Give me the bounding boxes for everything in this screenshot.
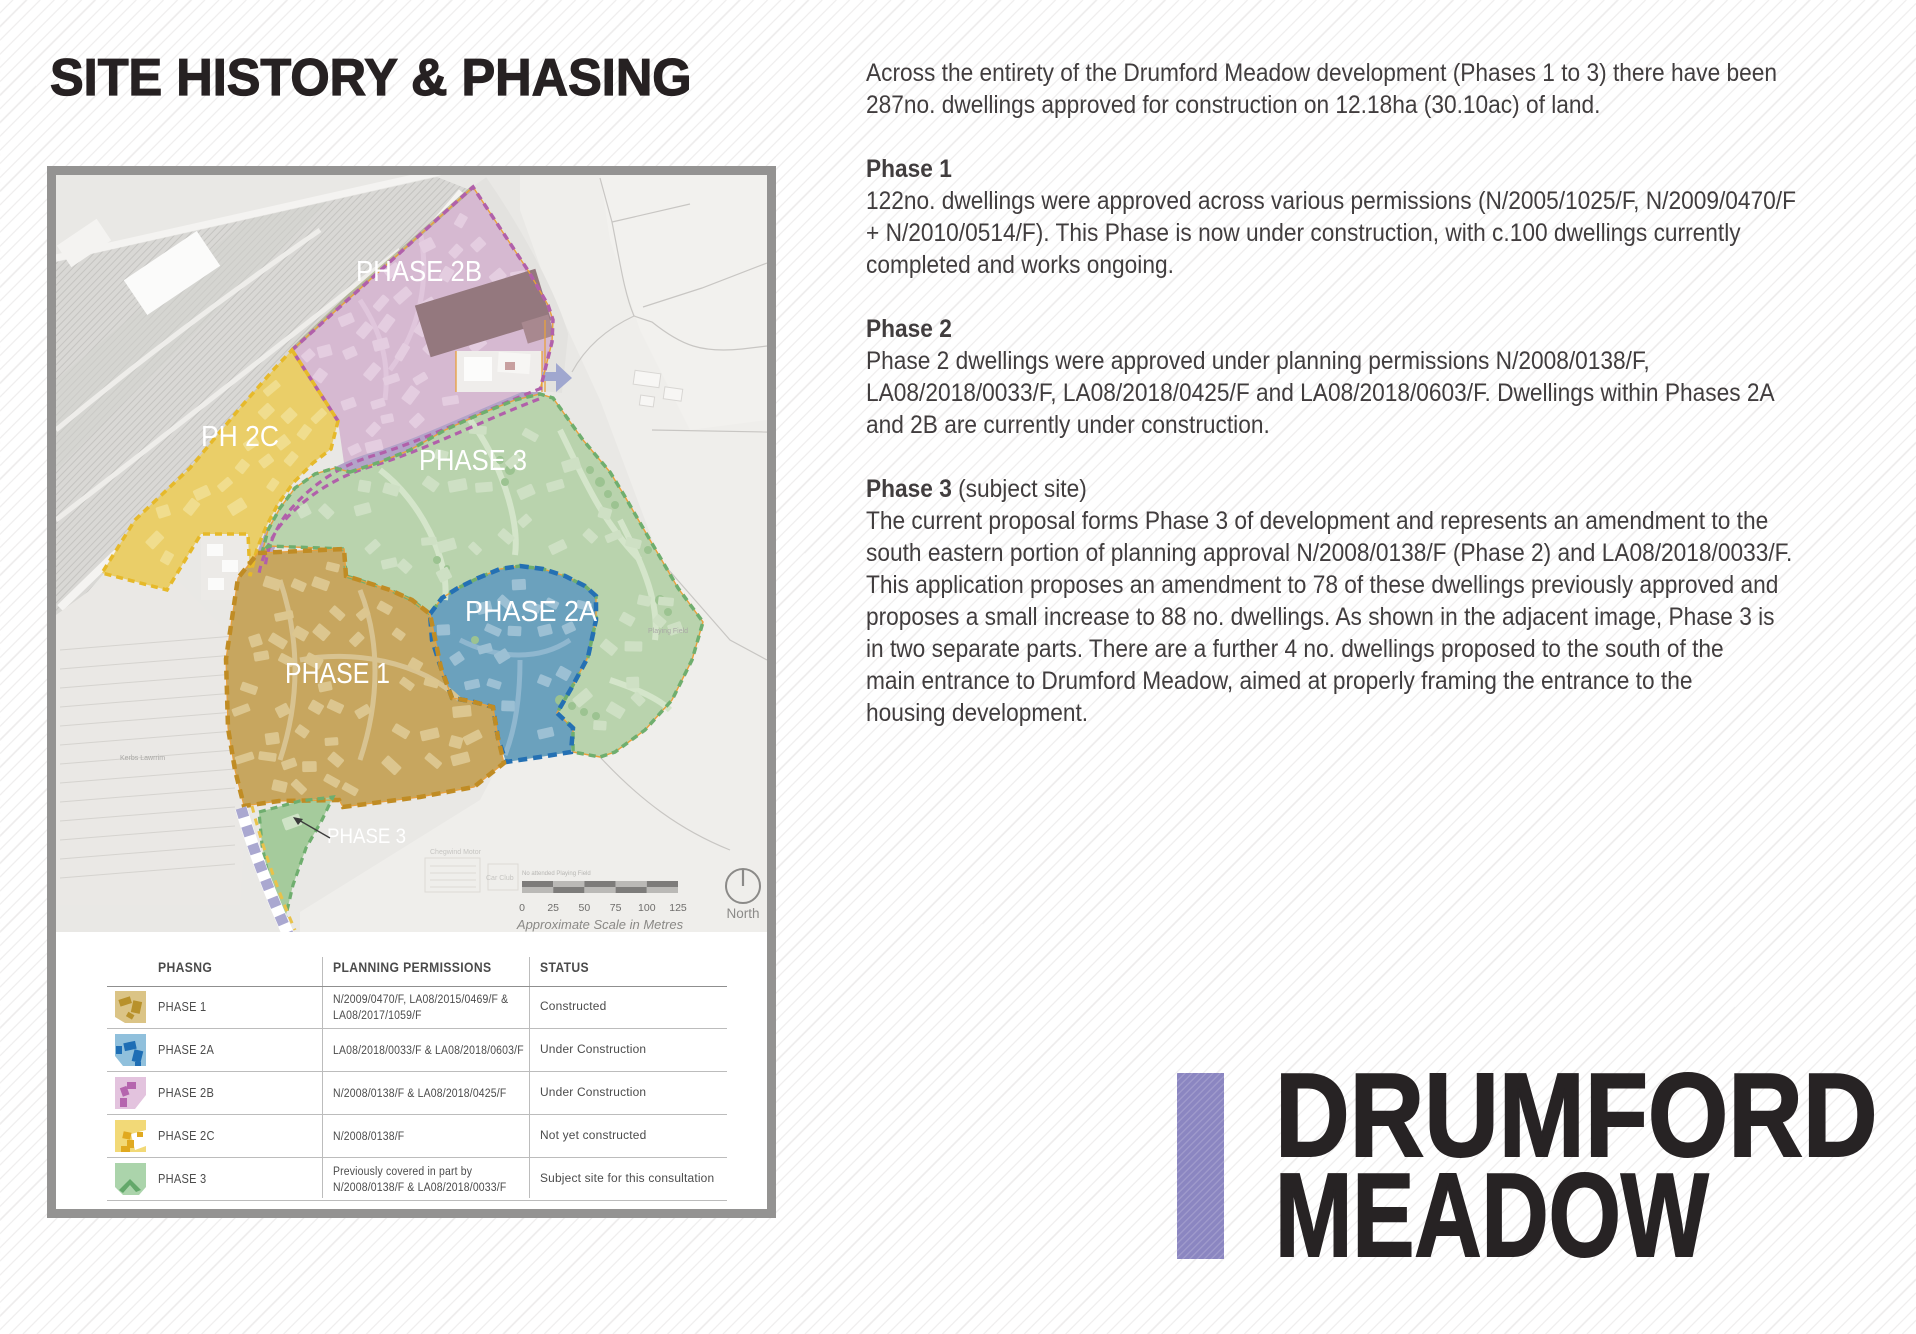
svg-text:Car Club: Car Club <box>486 875 514 882</box>
svg-text:No attended Playing Field: No attended Playing Field <box>522 871 591 877</box>
svg-text:PHASE 3: PHASE 3 <box>419 445 527 477</box>
svg-text:Approximate Scale in Metres: Approximate Scale in Metres <box>516 917 684 932</box>
svg-text:North: North <box>726 906 759 921</box>
svg-text:PHASE 3: PHASE 3 <box>327 825 406 848</box>
svg-text:25: 25 <box>547 902 559 914</box>
svg-text:PH 2C: PH 2C <box>201 421 279 453</box>
svg-text:100: 100 <box>638 902 656 914</box>
svg-text:Chegwind Motor: Chegwind Motor <box>430 849 482 856</box>
svg-text:PHASE 2A: PHASE 2A <box>465 596 598 628</box>
svg-text:125: 125 <box>669 902 687 914</box>
svg-text:PHASE 1: PHASE 1 <box>285 658 390 690</box>
svg-text:75: 75 <box>610 902 622 914</box>
svg-text:50: 50 <box>579 902 591 914</box>
svg-text:Playing Field: Playing Field <box>648 628 688 635</box>
svg-text:0: 0 <box>519 902 525 914</box>
svg-text:PHASE 2B: PHASE 2B <box>356 256 482 288</box>
svg-text:Kerbs Lawrrim: Kerbs Lawrrim <box>120 755 165 762</box>
